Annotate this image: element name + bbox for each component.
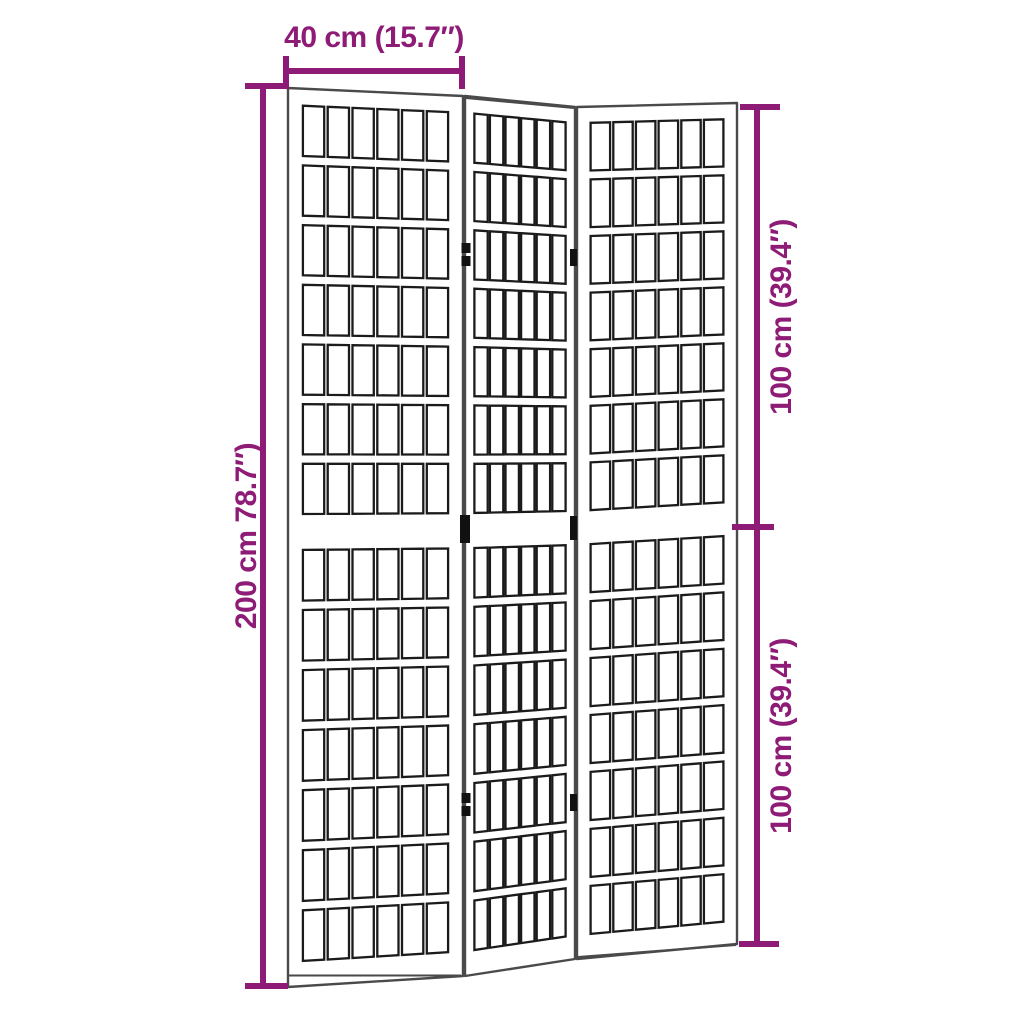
- lattice-cell: [303, 106, 324, 157]
- lattice-cell: [613, 122, 632, 170]
- lattice-cell: [613, 825, 632, 875]
- lattice-cell: [303, 729, 324, 780]
- lattice-cell: [353, 668, 374, 719]
- lattice-cell: [303, 610, 324, 661]
- lattice-cell: [552, 545, 565, 594]
- hinge-icon: [570, 249, 577, 266]
- lattice-cell: [552, 831, 565, 881]
- lattice-cell: [303, 849, 324, 901]
- lattice-cell: [613, 235, 632, 283]
- lattice-cell: [506, 779, 519, 829]
- lattice-cell: [328, 609, 349, 660]
- lattice-cell: [591, 884, 611, 934]
- lattice-cell: [537, 718, 550, 768]
- lattice-cell: [328, 285, 349, 335]
- lattice-cell: [303, 404, 324, 454]
- lattice-cell: [681, 650, 700, 699]
- lattice-cell: [681, 232, 700, 280]
- lattice-cell: [506, 117, 519, 167]
- lattice-cell: [402, 845, 423, 896]
- lattice-cell: [353, 167, 374, 218]
- lattice-cell: [681, 820, 700, 869]
- lattice-cell: [659, 177, 679, 225]
- lattice-cell: [636, 654, 656, 703]
- lattice-cell: [552, 602, 565, 651]
- lattice-cell: [636, 290, 656, 338]
- lattice-cell: [591, 543, 611, 592]
- lattice-cell: [704, 649, 724, 698]
- lattice-cell: [521, 406, 534, 455]
- hinge-icon: [462, 806, 471, 816]
- lattice-cell: [377, 786, 398, 837]
- lattice-cell: [552, 660, 565, 709]
- lattice-cell: [704, 343, 724, 391]
- lattice-cell: [552, 774, 565, 824]
- lattice-cell: [303, 165, 324, 216]
- lattice-cell: [659, 345, 679, 393]
- lattice-cell: [659, 595, 679, 644]
- lattice-cell: [377, 168, 398, 219]
- lattice-cell: [474, 172, 487, 222]
- lattice-cell: [506, 348, 519, 397]
- hinge-icon: [460, 515, 470, 543]
- lattice-cell: [704, 592, 724, 641]
- total-height-dimension-label: 200 cm 78.7″): [230, 443, 263, 629]
- lattice-cell: [490, 348, 503, 397]
- lattice-cell: [490, 547, 503, 597]
- hinge-icon: [462, 256, 471, 266]
- lattice-cell: [659, 233, 679, 281]
- lattice-cell: [552, 463, 565, 511]
- lattice-cell: [377, 227, 398, 277]
- width-dimension-label: 40 cm (15.7″): [284, 21, 464, 54]
- lattice-cell: [506, 232, 519, 281]
- lattice-cell: [402, 405, 423, 455]
- lattice-cell: [377, 109, 398, 160]
- lattice-cell: [659, 765, 679, 814]
- lattice-cell: [659, 539, 679, 588]
- lattice-cell: [402, 228, 423, 278]
- lattice-cell: [537, 234, 550, 283]
- lattice-cell: [490, 838, 503, 889]
- upper-height-dimension-label: 100 cm (39.4″): [765, 219, 798, 415]
- lattice-cell: [303, 550, 324, 601]
- lattice-cell: [521, 835, 534, 885]
- lattice-cell: [613, 655, 632, 704]
- lattice-cell: [377, 727, 398, 778]
- lattice-cell: [377, 549, 398, 599]
- lattice-cell: [427, 667, 448, 717]
- lattice-cell: [377, 464, 398, 514]
- lattice-cell: [521, 604, 534, 654]
- lattice-cell: [636, 710, 656, 759]
- lattice-cell: [704, 399, 724, 447]
- lattice-cell: [521, 662, 534, 712]
- lattice-cell: [506, 895, 519, 946]
- lattice-cell: [490, 406, 503, 455]
- lattice-cell: [613, 542, 632, 591]
- lattice-cell: [636, 880, 656, 930]
- top-dimension: 40 cm (15.7″): [284, 21, 464, 89]
- lattice-cell: [704, 455, 724, 503]
- lattice-cell: [490, 722, 503, 772]
- lattice-cell: [681, 176, 700, 224]
- lattice-cell: [521, 233, 534, 282]
- lattice-cell: [474, 114, 487, 164]
- lattice-cell: [636, 234, 656, 282]
- lattice-cell: [328, 908, 349, 960]
- lattice-cell: [613, 291, 632, 339]
- lattice-cell: [427, 170, 448, 220]
- lattice-cell: [353, 405, 374, 455]
- lattice-cell: [427, 844, 448, 895]
- lattice-cell: [377, 846, 398, 897]
- lattice-cell: [328, 729, 349, 780]
- lattice-cell: [681, 876, 700, 925]
- lattice-cell: [521, 291, 534, 340]
- hinge-icon: [462, 793, 471, 803]
- lattice-cell: [681, 538, 700, 587]
- lattice-cell: [377, 668, 398, 719]
- right-dimension: 100 cm (39.4″) 100 cm (39.4″): [732, 107, 798, 944]
- hinge-icon: [570, 516, 577, 540]
- lattice-cell: [490, 464, 503, 513]
- lattice-cell: [659, 709, 679, 758]
- lattice-cell: [552, 178, 565, 227]
- lattice-cell: [490, 664, 503, 714]
- lattice-cell: [521, 893, 534, 944]
- lattice-cell: [353, 286, 374, 336]
- lattice-cell: [537, 890, 550, 940]
- lattice-cell: [353, 609, 374, 660]
- lattice-cell: [377, 286, 398, 336]
- lattice-cell: [681, 594, 700, 643]
- lattice-cell: [704, 818, 724, 867]
- lattice-cell: [353, 728, 374, 779]
- lattice-cell: [328, 166, 349, 217]
- lattice-cell: [659, 402, 679, 450]
- lattice-cell: [591, 600, 611, 649]
- lattice-cell: [402, 110, 423, 160]
- lattice-cell: [377, 346, 398, 396]
- lattice-cell: [521, 546, 534, 595]
- lattice-cell: [636, 346, 656, 394]
- lattice-cell: [402, 549, 423, 599]
- lattice-cell: [353, 907, 374, 959]
- lattice-cell: [402, 287, 423, 337]
- left-dimension: 200 cm 78.7″): [230, 86, 288, 986]
- lattice-cell: [552, 121, 565, 170]
- lattice-cell: [591, 405, 611, 454]
- divider-panels: [288, 88, 737, 987]
- lattice-cell: [537, 776, 550, 826]
- lattice-cell: [328, 848, 349, 900]
- lattice-cell: [303, 464, 324, 514]
- lattice-cell: [353, 345, 374, 395]
- lattice-cell: [613, 882, 632, 932]
- lattice-cell: [328, 404, 349, 454]
- lattice-cell: [552, 406, 565, 454]
- lattice-cell: [506, 547, 519, 596]
- lattice-cell: [303, 285, 324, 336]
- lattice-cell: [636, 540, 656, 589]
- lattice-cell: [490, 173, 503, 223]
- lattice-cell: [681, 763, 700, 812]
- lattice-cell: [353, 464, 374, 514]
- lattice-cell: [303, 344, 324, 395]
- room-divider-dimension-diagram: 40 cm (15.7″) 200 cm 78.7″) 100 cm (39.4…: [0, 0, 1024, 1024]
- diagram-canvas: 40 cm (15.7″) 200 cm 78.7″) 100 cm (39.4…: [0, 0, 1024, 1024]
- lattice-cell: [490, 115, 503, 165]
- panel-right: [577, 103, 737, 959]
- lattice-cell: [474, 899, 487, 950]
- lattice-cell: [474, 548, 487, 598]
- lattice-cell: [377, 405, 398, 455]
- lattice-cell: [303, 909, 324, 961]
- lattice-cell: [591, 827, 611, 877]
- lattice-cell: [427, 785, 448, 836]
- lattice-cell: [659, 458, 679, 506]
- lattice-cell: [704, 536, 724, 585]
- lattice-cell: [659, 289, 679, 337]
- lattice-cell: [591, 461, 611, 510]
- lattice-cell: [328, 788, 349, 839]
- lattice-cell: [591, 348, 611, 397]
- lattice-cell: [636, 403, 656, 452]
- lattice-cell: [704, 874, 724, 923]
- lattice-cell: [328, 464, 349, 514]
- lattice-cell: [552, 349, 565, 397]
- lattice-cell: [591, 714, 611, 764]
- lattice-cell: [704, 287, 724, 335]
- lattice-cell: [427, 464, 448, 514]
- lattice-cell: [521, 118, 534, 168]
- lattice-cell: [490, 780, 503, 831]
- lattice-cell: [591, 292, 611, 341]
- lattice-cell: [636, 459, 656, 508]
- lattice-cell: [427, 405, 448, 455]
- lattice-cell: [353, 847, 374, 898]
- lattice-cell: [427, 229, 448, 279]
- lattice-cell: [613, 598, 632, 647]
- lattice-cell: [303, 670, 324, 721]
- lattice-cell: [506, 464, 519, 513]
- lattice-cell: [521, 463, 534, 512]
- lattice-cell: [377, 608, 398, 659]
- lattice-cell: [636, 767, 656, 816]
- lattice-cell: [659, 121, 679, 169]
- lattice-cell: [613, 712, 632, 761]
- lattice-cell: [427, 111, 448, 161]
- lattice-cell: [328, 226, 349, 277]
- lattice-cell: [552, 717, 565, 767]
- lattice-cell: [490, 605, 503, 655]
- lattice-cell: [636, 824, 656, 874]
- lattice-cell: [613, 178, 632, 226]
- lattice-cell: [537, 661, 550, 711]
- lattice-cell: [537, 120, 550, 169]
- lattice-cell: [474, 782, 487, 833]
- lattice-cell: [506, 605, 519, 655]
- lattice-cell: [427, 726, 448, 777]
- lattice-cell: [552, 888, 565, 938]
- lattice-cell: [537, 349, 550, 397]
- lower-height-dimension-label: 100 cm (39.4″): [765, 638, 798, 834]
- lattice-cell: [402, 786, 423, 837]
- lattice-cell: [659, 652, 679, 701]
- lattice-cell: [521, 348, 534, 397]
- lattice-cell: [402, 464, 423, 514]
- lattice-cell: [402, 904, 423, 955]
- lattice-cell: [474, 347, 487, 396]
- lattice-cell: [521, 176, 534, 225]
- lattice-cell: [681, 344, 700, 392]
- lattice-cell: [591, 235, 611, 283]
- lattice-cell: [537, 546, 550, 595]
- lattice-cell: [681, 707, 700, 756]
- lattice-cell: [704, 175, 724, 223]
- lattice-cell: [427, 288, 448, 338]
- lattice-cell: [427, 346, 448, 396]
- lattice-cell: [681, 400, 700, 448]
- lattice-cell: [474, 665, 487, 715]
- lattice-cell: [704, 705, 724, 754]
- lattice-cell: [474, 606, 487, 656]
- lattice-cell: [303, 789, 324, 841]
- lattice-cell: [427, 903, 448, 954]
- lattice-cell: [591, 770, 611, 820]
- lattice-cell: [490, 897, 503, 948]
- lattice-cell: [353, 227, 374, 278]
- lattice-cell: [506, 406, 519, 455]
- lattice-cell: [659, 878, 679, 928]
- lattice-cell: [613, 769, 632, 819]
- lattice-cell: [474, 230, 487, 280]
- lattice-cell: [474, 289, 487, 339]
- hinge-icon: [570, 794, 577, 811]
- lattice-cell: [506, 290, 519, 339]
- lattice-cell: [613, 460, 632, 509]
- lattice-cell: [636, 597, 656, 646]
- lattice-cell: [402, 667, 423, 718]
- lattice-cell: [427, 549, 448, 599]
- lattice-cell: [506, 837, 519, 888]
- lattice-cell: [537, 463, 550, 511]
- lattice-cell: [353, 787, 374, 838]
- lattice-cell: [636, 121, 656, 169]
- lattice-cell: [377, 905, 398, 956]
- lattice-cell: [402, 169, 423, 219]
- lattice-cell: [521, 719, 534, 769]
- lattice-cell: [704, 231, 724, 279]
- panel-left: [288, 88, 463, 987]
- lattice-cell: [591, 122, 611, 170]
- lattice-cell: [474, 464, 487, 513]
- lattice-cell: [353, 108, 374, 159]
- lattice-cell: [474, 405, 487, 454]
- lattice-cell: [328, 669, 349, 720]
- lattice-cell: [328, 345, 349, 395]
- lattice-cell: [613, 347, 632, 396]
- lattice-cell: [490, 289, 503, 338]
- lattice-cell: [537, 177, 550, 226]
- lattice-cell: [328, 107, 349, 158]
- lattice-cell: [537, 406, 550, 454]
- lattice-cell: [427, 608, 448, 658]
- lattice-cell: [704, 762, 724, 811]
- lattice-cell: [681, 457, 700, 505]
- lattice-cell: [681, 288, 700, 336]
- lattice-cell: [506, 174, 519, 224]
- lattice-cell: [490, 231, 503, 280]
- lattice-cell: [402, 346, 423, 396]
- lattice-cell: [704, 119, 724, 167]
- lattice-cell: [681, 120, 700, 168]
- lattice-cell: [591, 179, 611, 227]
- panel-middle: [465, 96, 575, 976]
- lattice-cell: [521, 777, 534, 827]
- lattice-cell: [303, 225, 324, 276]
- lattice-cell: [591, 657, 611, 706]
- lattice-cell: [636, 177, 656, 225]
- lattice-cell: [552, 292, 565, 340]
- lattice-cell: [506, 663, 519, 713]
- lattice-cell: [613, 404, 632, 453]
- lattice-cell: [474, 840, 487, 891]
- lattice-cell: [659, 822, 679, 871]
- hinge-icon: [462, 243, 471, 253]
- lattice-cell: [552, 235, 565, 284]
- lattice-cell: [537, 292, 550, 341]
- lattice-cell: [506, 721, 519, 771]
- lattice-cell: [328, 550, 349, 601]
- lattice-cell: [537, 603, 550, 652]
- lattice-cell: [474, 723, 487, 774]
- lattice-cell: [537, 833, 550, 883]
- lattice-cell: [353, 549, 374, 600]
- lattice-cell: [402, 608, 423, 658]
- lattice-cell: [402, 726, 423, 777]
